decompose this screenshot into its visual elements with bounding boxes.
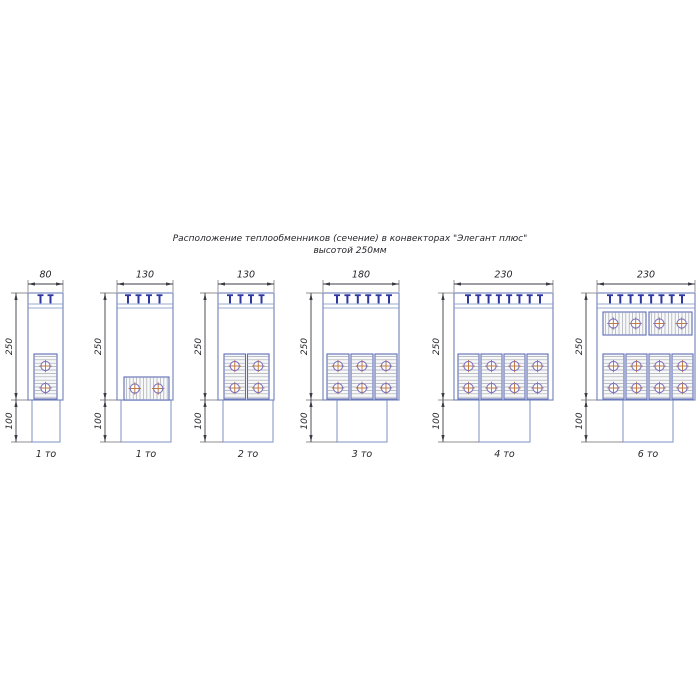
clip-stem	[367, 296, 369, 304]
dimension-arrow	[14, 435, 17, 442]
body-height-label: 250	[300, 338, 310, 355]
clip-stem	[671, 296, 673, 304]
clip-stem	[261, 296, 263, 304]
clip-stem	[488, 296, 490, 304]
clip-stem	[240, 296, 242, 304]
duct-leg	[623, 400, 673, 442]
width-dimension-label: 230	[494, 270, 512, 281]
clip-stem	[498, 296, 500, 304]
duct-leg	[121, 400, 171, 442]
dimension-arrow	[117, 282, 124, 285]
width-dimension-label: 80	[39, 270, 51, 281]
dimension-arrow	[203, 400, 206, 407]
width-dimension-label: 180	[352, 270, 370, 281]
duct-leg	[479, 400, 530, 442]
clip-stem	[148, 296, 150, 304]
leg-height-label: 100	[5, 412, 15, 429]
dimension-arrow	[584, 393, 587, 400]
width-dimension: 80	[28, 270, 63, 293]
dimension-arrow	[441, 293, 444, 300]
heat-exchanger-cell	[124, 377, 169, 400]
dimension-arrow	[454, 282, 461, 285]
body-height-label: 250	[432, 338, 442, 355]
heat-exchanger-cell	[649, 312, 692, 335]
dimension-arrow	[103, 435, 106, 442]
dimension-arrow	[103, 293, 106, 300]
clip-stem	[50, 296, 52, 304]
dimension-arrow	[584, 293, 587, 300]
width-dimension: 230	[597, 270, 695, 293]
dimension-arrow	[323, 282, 330, 285]
body-height-label: 250	[194, 338, 204, 355]
clip-stem	[650, 296, 652, 304]
dimension-arrow	[203, 435, 206, 442]
dimension-arrow	[14, 293, 17, 300]
clip-stem	[630, 296, 632, 304]
clip-stem	[357, 296, 359, 304]
dimension-arrow	[267, 282, 274, 285]
clip-stem	[336, 296, 338, 304]
clip-stem	[40, 296, 42, 304]
width-dimension: 230	[454, 270, 553, 293]
clip-stem	[640, 296, 642, 304]
dimension-arrow	[546, 282, 553, 285]
width-dimension: 180	[323, 270, 399, 293]
variant-name-label: 1 то	[36, 449, 57, 460]
heat-exchanger-cell	[375, 354, 397, 399]
clip-stem	[159, 296, 161, 304]
width-dimension-label: 230	[637, 270, 655, 281]
leg-height-label: 100	[194, 412, 204, 429]
body-height-label: 250	[94, 338, 104, 355]
leg-height-label: 100	[94, 412, 104, 429]
width-dimension: 130	[218, 270, 274, 293]
heat-exchanger-cell	[458, 354, 479, 399]
body-height-label: 250	[575, 338, 585, 355]
dimension-arrow	[392, 282, 399, 285]
clip-stem	[619, 296, 621, 304]
dimension-arrow	[28, 282, 35, 285]
technical-drawing: 802501001 то1302501001 то1302501002 то18…	[0, 0, 700, 700]
dimension-arrow	[309, 435, 312, 442]
leg-height-label: 100	[300, 412, 310, 429]
dimension-arrow	[103, 400, 106, 407]
dimension-arrow	[56, 282, 63, 285]
dimension-arrow	[14, 400, 17, 407]
variant-name-label: 1 то	[136, 449, 157, 460]
dimension-arrow	[203, 293, 206, 300]
dimension-arrow	[584, 435, 587, 442]
dimension-arrow	[309, 393, 312, 400]
heat-exchanger-cell	[481, 354, 502, 399]
dimension-arrow	[688, 282, 695, 285]
convector-6: 2302501006 то	[575, 270, 695, 461]
duct-leg	[337, 400, 387, 442]
heat-exchanger-cell	[626, 354, 647, 399]
clip-stem	[609, 296, 611, 304]
width-dimension: 130	[117, 270, 173, 293]
width-dimension-label: 130	[237, 270, 255, 281]
clip-stem	[138, 296, 140, 304]
heat-exchanger-cell	[527, 354, 548, 399]
dimension-arrow	[218, 282, 225, 285]
variant-name-label: 6 то	[638, 449, 659, 460]
convector-1: 802501001 то	[5, 270, 63, 461]
convector-5: 2302501004 то	[432, 270, 553, 461]
clip-stem	[127, 296, 129, 304]
dimension-arrow	[441, 393, 444, 400]
clip-stem	[378, 296, 380, 304]
clip-stem	[529, 296, 531, 304]
dimension-arrow	[14, 393, 17, 400]
dimension-arrow	[441, 435, 444, 442]
dimension-arrow	[584, 400, 587, 407]
clip-stem	[229, 296, 231, 304]
dimension-arrow	[597, 282, 604, 285]
heat-exchanger-cell	[34, 354, 57, 399]
dimension-arrow	[203, 393, 206, 400]
width-dimension-label: 130	[136, 270, 154, 281]
clip-stem	[681, 296, 683, 304]
clip-stem	[539, 296, 541, 304]
dimension-arrow	[309, 293, 312, 300]
heat-exchanger-cell	[504, 354, 525, 399]
heat-exchanger-cell	[351, 354, 373, 399]
heat-exchanger-cell	[603, 312, 646, 335]
leg-height-label: 100	[575, 412, 585, 429]
convector-2: 1302501001 то	[94, 270, 173, 461]
heat-exchanger-cell	[248, 354, 270, 399]
heat-exchanger-cell	[603, 354, 624, 399]
variant-name-label: 3 то	[352, 449, 373, 460]
clip-stem	[250, 296, 252, 304]
clip-stem	[508, 296, 510, 304]
clip-stem	[467, 296, 469, 304]
clip-stem	[660, 296, 662, 304]
duct-leg	[32, 400, 60, 442]
heat-exchanger-cell	[224, 354, 246, 399]
clip-stem	[346, 296, 348, 304]
drawing-canvas: Расположение теплообменников (сечение) в…	[0, 0, 700, 700]
clip-stem	[518, 296, 520, 304]
dimension-arrow	[103, 393, 106, 400]
heat-exchanger-cell	[672, 354, 693, 399]
clip-stem	[388, 296, 390, 304]
leg-height-label: 100	[432, 412, 442, 429]
convector-3: 1302501002 то	[194, 270, 274, 461]
clip-stem	[477, 296, 479, 304]
heat-exchanger-cell	[649, 354, 670, 399]
convector-4: 1802501003 то	[300, 270, 399, 461]
dimension-arrow	[166, 282, 173, 285]
variant-name-label: 2 то	[238, 449, 259, 460]
variant-name-label: 4 то	[494, 449, 515, 460]
dimension-arrow	[441, 400, 444, 407]
heat-exchanger-cell	[327, 354, 349, 399]
body-height-label: 250	[5, 338, 15, 355]
duct-leg	[223, 400, 273, 442]
dimension-arrow	[309, 400, 312, 407]
